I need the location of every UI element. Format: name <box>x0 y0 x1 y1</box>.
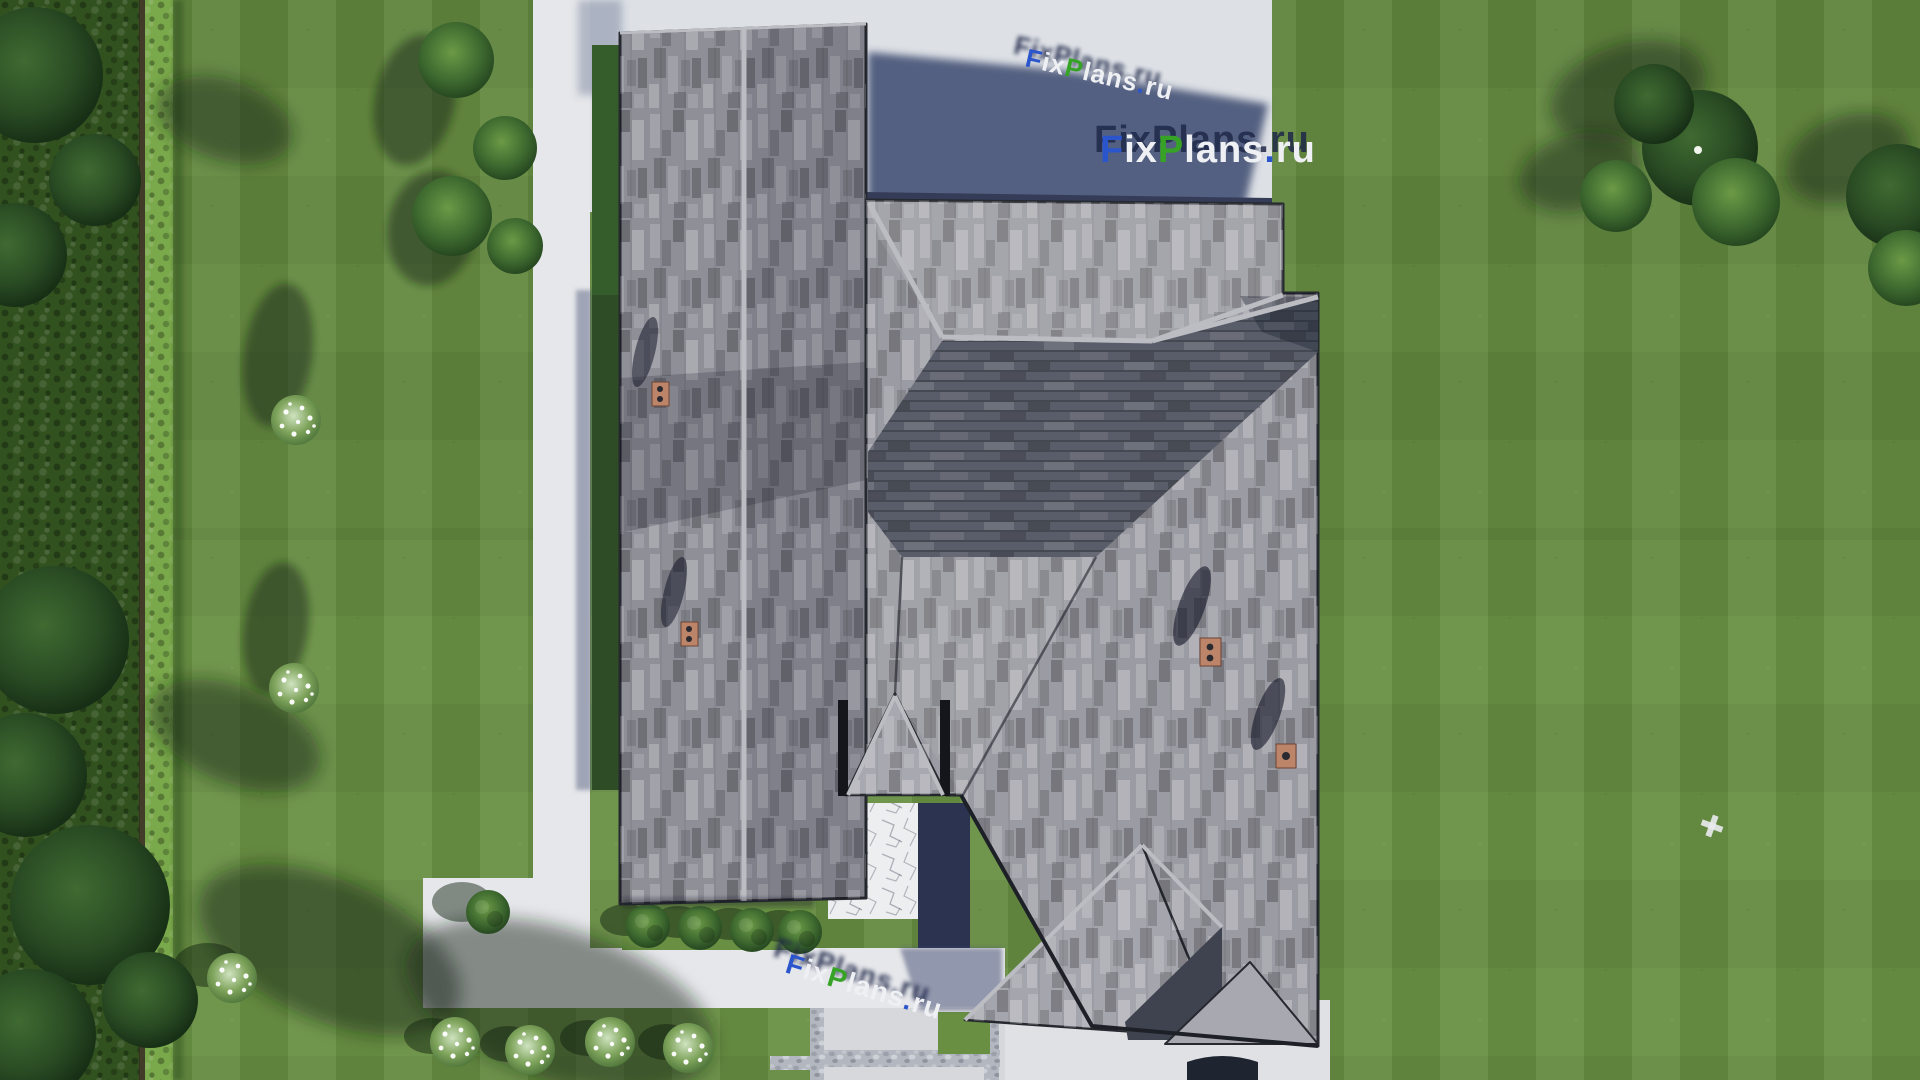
render-canvas: FixPlans.ru FixPlans.ru FixPlans.ru FixP… <box>0 0 1920 1080</box>
aerial-render: FixPlans.ru FixPlans.ru FixPlans.ru FixP… <box>0 0 1920 1080</box>
garage-opening <box>1187 1056 1258 1080</box>
white-bird-dot <box>1694 146 1702 154</box>
courtyard-shadow <box>918 803 970 948</box>
watermark-flat: FixPlans.ru FixPlans.ru <box>1094 119 1316 171</box>
roof-left-wing <box>620 24 866 904</box>
watermark-text: FixPlans.ru <box>1100 129 1316 171</box>
hedge-shadow-on-path <box>576 290 592 790</box>
